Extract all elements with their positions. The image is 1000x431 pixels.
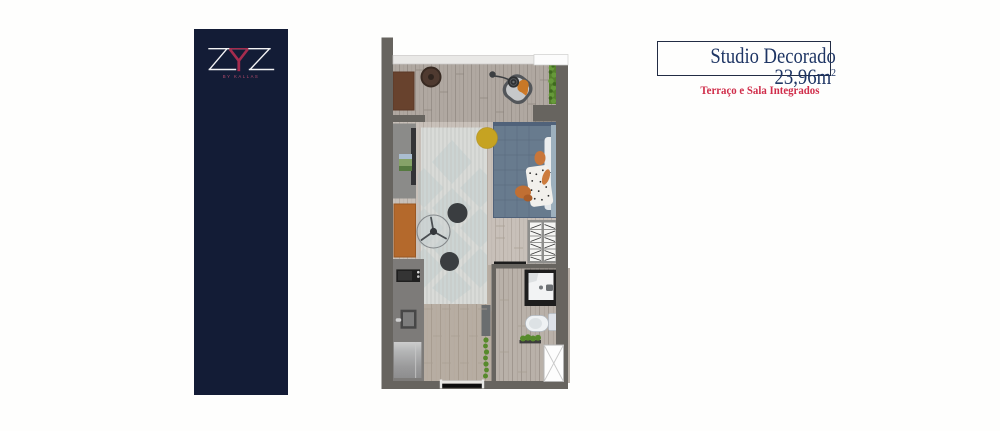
svg-text:BY KALLAS: BY KALLAS [223, 74, 260, 79]
